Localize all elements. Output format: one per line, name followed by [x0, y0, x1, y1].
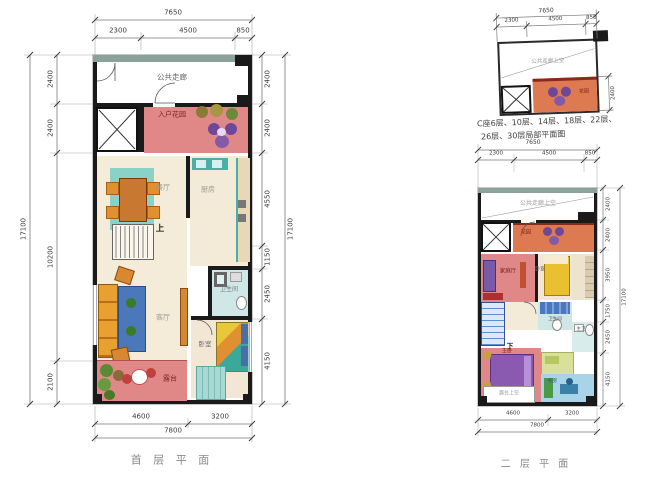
f1-corridor-label: 公共走廊 — [157, 73, 187, 81]
f2-garden-label: 花园 — [521, 231, 531, 236]
f2-master-label: 主卧 — [501, 349, 512, 355]
pillow-icon — [241, 346, 248, 366]
mini-garden-label: 花园 — [579, 89, 589, 94]
armchair-icon — [225, 123, 237, 135]
f1-elevator-icon — [96, 107, 138, 152]
f1-dim: 4150 — [265, 352, 272, 370]
armchair-icon — [555, 227, 564, 236]
shower-icon — [540, 302, 570, 314]
f2-corner-block — [586, 396, 597, 406]
mini-wall-block — [593, 30, 608, 42]
patio-chair-icon — [146, 368, 156, 378]
mini-dim-right: 2400 — [611, 86, 617, 100]
f2-stairs — [481, 302, 505, 346]
f1-corner-block — [93, 394, 102, 404]
pillow-icon — [524, 356, 531, 386]
f2-corridor-label: 公共走廊上空 — [520, 201, 556, 207]
f1-dim: 10200 — [48, 246, 55, 268]
plant-icon — [126, 326, 136, 336]
f2-dim: 4600 — [506, 411, 520, 417]
f2-dim: 2300 — [489, 151, 503, 157]
stove-icon — [238, 200, 246, 208]
mini-plan-group: 公共走廊上空 花园 7650 2300 4500 850 2400 — [474, 3, 638, 127]
sink-icon — [196, 160, 206, 168]
f1-dim: 2400 — [48, 119, 55, 137]
f2-terrace-label: 露台上空 — [499, 392, 519, 397]
f2-dim: 3950 — [606, 268, 612, 282]
f2-dim: 4150 — [606, 372, 612, 386]
plant-icon — [100, 364, 113, 377]
f1-dim: 1150 — [265, 248, 272, 266]
toilet-icon — [236, 296, 247, 310]
pillow-icon — [544, 256, 568, 264]
mini-dim-total: 7650 — [538, 8, 553, 15]
plant-icon — [226, 108, 238, 120]
plant-icon — [196, 106, 208, 118]
partition-icon — [520, 262, 526, 288]
f2-right-wall — [594, 193, 597, 406]
f1-dim-left-total: 17100 — [21, 218, 28, 240]
sink-icon — [212, 160, 222, 168]
f2-top-wall — [478, 188, 597, 193]
f2-dim-bottom-total: 7800 — [530, 423, 544, 429]
sofa-icon — [98, 284, 118, 358]
f1-dim: 4600 — [132, 414, 150, 421]
f1-dim: 2400 — [265, 119, 272, 137]
f2-dim: 4500 — [542, 151, 556, 157]
f1-dim-bottom-total: 7800 — [164, 428, 182, 435]
f1-corner-block — [243, 394, 252, 404]
f2-dim: 2400 — [606, 197, 612, 211]
f1-dim: 2400 — [265, 70, 272, 88]
dining-table-icon — [119, 178, 147, 222]
plant-icon — [483, 351, 491, 359]
mini-dim: 4500 — [548, 17, 562, 23]
f2-corner-block — [478, 396, 487, 406]
note-line2: 26层、30层局部平面图 — [481, 129, 566, 143]
chair-icon — [106, 206, 119, 219]
basin-icon — [230, 272, 242, 282]
f1-dim: 2300 — [109, 28, 127, 35]
chair-icon — [106, 182, 119, 195]
coffee-table-icon — [118, 286, 146, 352]
f1-dim: 2400 — [48, 70, 55, 88]
tv-cabinet-icon — [180, 288, 188, 346]
chair-icon — [147, 206, 160, 219]
f2-bedroom-label: 卧室 — [535, 268, 545, 273]
mini-dim: 2300 — [504, 19, 518, 25]
cabinet-icon — [545, 356, 559, 364]
toilet-icon — [585, 324, 594, 336]
f2-dim: 3200 — [565, 411, 579, 417]
f2-bath-label: 卫生间 — [548, 318, 562, 323]
f2-dim-right-total: 17100 — [622, 288, 628, 306]
pillow-icon — [241, 324, 248, 344]
f2-dim: 1750 — [606, 304, 612, 318]
shower-tray-icon — [217, 275, 224, 284]
f1-living-label: 客厅 — [156, 315, 170, 322]
f1-dim: 850 — [236, 28, 249, 35]
f1-bedroom-label: 卧室 — [199, 341, 212, 348]
f2-dim-top-total: 7650 — [525, 140, 540, 146]
f1-top-wall — [93, 55, 252, 62]
kitchen-counter-icon — [236, 158, 250, 262]
mini-elevator-icon — [501, 85, 532, 114]
f2-wall-block — [578, 212, 597, 221]
floor1-caption: 首 层 平 面 — [131, 455, 214, 466]
f1-stairs — [112, 224, 154, 260]
sofa-icon — [483, 260, 496, 292]
f2-master-bath-label: 主卫 — [577, 328, 586, 333]
plant-icon — [210, 104, 223, 117]
table-icon — [217, 128, 226, 136]
armchair-icon — [543, 227, 552, 236]
f1-kitchen-label: 厨房 — [201, 187, 215, 194]
f2-elevator-icon — [481, 222, 511, 252]
f2-dim: 850 — [585, 151, 596, 157]
plant-icon — [104, 390, 115, 400]
f2-study-label: 书房 — [547, 380, 557, 385]
f1-dim: 2450 — [265, 285, 272, 303]
f1-dim: 3200 — [211, 414, 229, 421]
desk-icon — [560, 384, 578, 394]
f1-dim: 4500 — [179, 28, 197, 35]
closet-icon — [585, 256, 594, 298]
f1-dim-right-total: 17100 — [288, 218, 295, 240]
mini-corridor-label: 公共走廊上空 — [531, 59, 564, 66]
f1-dining-label: 餐厅 — [156, 185, 170, 192]
f2-dim: 2450 — [606, 330, 612, 344]
chair-icon — [566, 378, 573, 385]
f1-dim: 4550 — [265, 190, 272, 208]
stove-icon — [238, 214, 246, 222]
floor-plan-sheet: 公共走廊 入户花园 餐厅 厨房 客厅 卫生间 卧室 露台 上 7650 2300… — [0, 0, 660, 487]
armchair-icon — [549, 236, 559, 245]
floor2-caption: 二 层 平 面 — [501, 460, 572, 470]
patio-chair-icon — [122, 374, 132, 384]
f1-dim: 2100 — [48, 373, 55, 391]
f1-bath-label: 卫生间 — [220, 287, 238, 293]
f2-hall-floor — [505, 302, 538, 330]
f1-stairs-up-label: 上 — [156, 225, 165, 234]
f1-terrace-label: 露台 — [163, 376, 177, 383]
mini-dim: 850 — [586, 16, 597, 22]
f1-garden-label: 入户花园 — [158, 112, 186, 119]
plant-icon — [126, 298, 136, 308]
f1-dim-top-total: 7650 — [164, 10, 182, 17]
f2-stairs-down-label: 下 — [507, 343, 514, 350]
cabinet-icon — [483, 293, 503, 300]
f2-family-label: 家庭厅 — [500, 269, 517, 275]
wardrobe-icon — [196, 366, 226, 400]
f2-dim: 2400 — [606, 228, 612, 242]
armchair-icon — [215, 135, 229, 148]
